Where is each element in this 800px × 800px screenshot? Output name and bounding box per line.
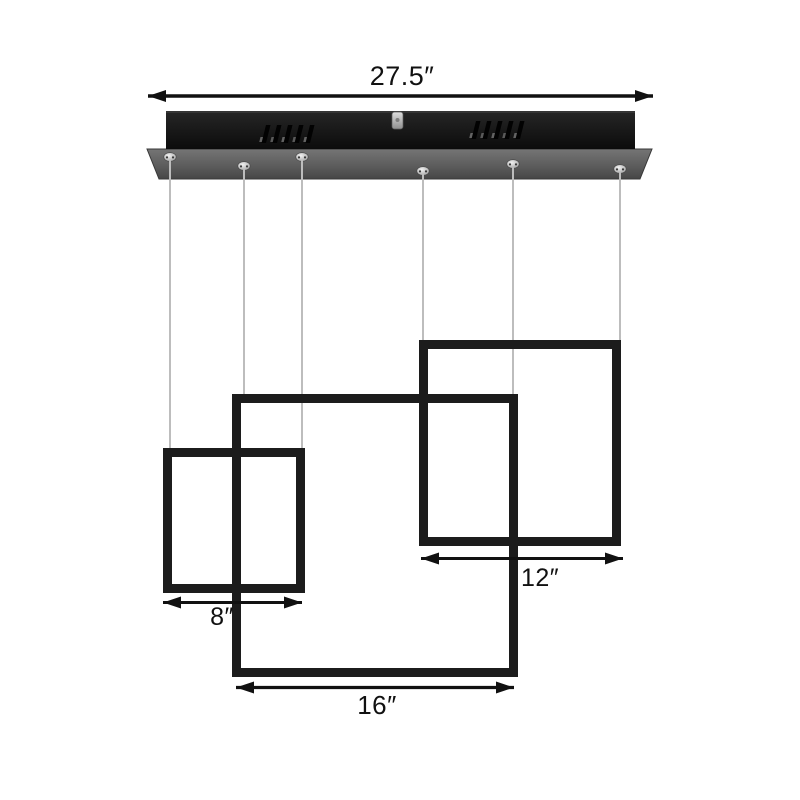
small-square-width-label: 8″ bbox=[182, 603, 262, 632]
large-square-width-label: 16″ bbox=[337, 690, 417, 721]
dimension-arrows bbox=[148, 96, 653, 688]
square-frame-medium-12in bbox=[424, 345, 617, 542]
mounting-screw bbox=[392, 112, 403, 129]
pendant-light-dimension-diagram: 27.5″ 12″ 8″ 16″ bbox=[0, 0, 800, 800]
diagram-drawing bbox=[0, 0, 800, 800]
square-frame-large-16in bbox=[237, 399, 514, 673]
canopy-base-plate bbox=[147, 149, 652, 179]
medium-square-width-label: 12″ bbox=[521, 564, 559, 593]
canopy-width-label: 27.5″ bbox=[322, 61, 482, 92]
ceiling-canopy bbox=[147, 111, 652, 179]
